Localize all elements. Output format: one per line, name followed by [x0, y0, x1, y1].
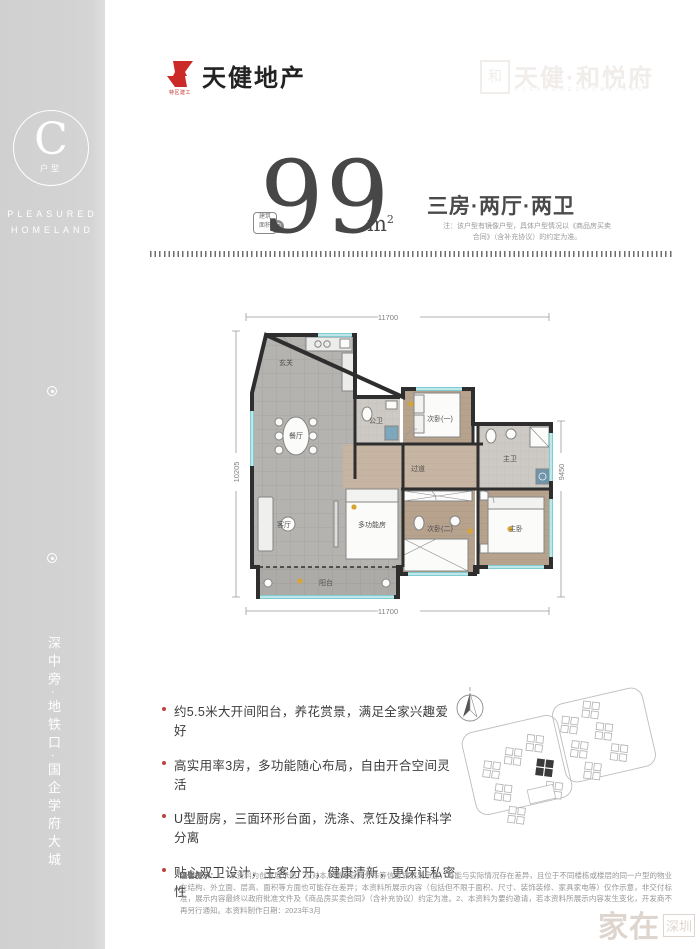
area-unit-sup: 2	[387, 213, 394, 226]
room-label-entry: 玄关	[279, 358, 293, 367]
left-sidebar: C 户型 PLEASURED HOMELAND 户型鉴赏 深中旁·地铁口·国企学…	[0, 0, 105, 949]
logo-text: 天健地产	[202, 58, 306, 93]
watermark-subtitle: P L E A S U R E D H O M E L A N D	[515, 87, 644, 93]
site-plan	[440, 683, 690, 848]
area-unit-m: m	[367, 212, 387, 236]
compass-icon	[457, 687, 483, 721]
media-watermark: 家在深圳	[598, 902, 695, 946]
layout-note: 注：该户型有镜像户型，具体户型情况以《商品房买卖 合同》（含补充协议）的约定为准…	[427, 221, 627, 243]
room-label-corridor: 过道	[411, 464, 425, 473]
flyer-page: C 户型 PLEASURED HOMELAND 户型鉴赏 深中旁·地铁口·国企学…	[0, 0, 700, 949]
room-label-bedroom1: 次卧(一)	[427, 414, 453, 423]
area-unit: m2	[367, 212, 394, 236]
floor-plan: 11700 11700 10205 9450	[228, 303, 573, 630]
sidebar-english-line1: PLEASURED	[0, 209, 105, 219]
room-label-multiroom: 多功能房	[358, 520, 386, 529]
room-label-living: 客厅	[277, 520, 291, 529]
room-label-dining: 餐厅	[289, 431, 303, 440]
selling-point: 高实用率3房，多功能随心布局，自由开合空间灵活	[160, 755, 460, 793]
room-label-master-bath: 主卫	[503, 454, 517, 463]
disclaimer-label: 温馨提示：	[180, 871, 218, 880]
unit-type-badge: C 户型	[13, 110, 89, 186]
highlighted-unit	[536, 759, 554, 777]
ornament-dot-top	[47, 386, 57, 396]
developer-logo: 特区建工 天健地产	[165, 60, 306, 96]
room-label-master-bedroom: 主卧	[509, 524, 523, 533]
sidebar-english-line2: HOMELAND	[0, 225, 105, 235]
dim-left: 10205	[232, 462, 241, 483]
unit-letter: C	[14, 111, 88, 169]
room-label-guest-bath: 公卫	[369, 417, 383, 425]
layout-summary: 三房·两厅·两卫	[427, 190, 575, 220]
media-watermark-big: 家在	[598, 910, 660, 945]
sidebar-vertical-title: 户型鉴赏	[41, 402, 146, 572]
ornament-dot-bottom	[47, 553, 57, 563]
room-label-balcony: 阳台	[319, 578, 333, 587]
selling-point: 约5.5米大开间阳台，养花赏景，满足全家兴趣爱好	[160, 701, 460, 739]
dim-bottom: 11700	[378, 607, 398, 616]
layout-note-line1: 注：该户型有镜像户型，具体户型情况以《商品房买卖	[443, 223, 611, 230]
dim-top: 11700	[378, 313, 398, 322]
dotted-divider	[150, 251, 672, 257]
unit-label: 户型	[14, 163, 88, 174]
media-watermark-small: 深圳	[663, 914, 695, 937]
dim-right: 9450	[557, 464, 566, 481]
room-label-bedroom2: 次卧(二)	[427, 524, 453, 533]
floor-plan-svg: 11700 11700 10205 9450	[228, 303, 573, 625]
selling-point: U型厨房，三面环形台面，洗涤、烹饪及操作科学分离	[160, 808, 460, 846]
watermark-logo-icon: 和	[480, 60, 510, 94]
layout-note-line2: 合同》（含补充协议）的约定为准。	[473, 234, 582, 241]
logo-s-icon: 特区建工	[165, 60, 195, 96]
logo-subtext: 特区建工	[165, 89, 195, 96]
sidebar-vertical-slogan: 深中旁·地铁口·国企学府大城	[44, 636, 63, 896]
site-buildings	[471, 694, 640, 831]
